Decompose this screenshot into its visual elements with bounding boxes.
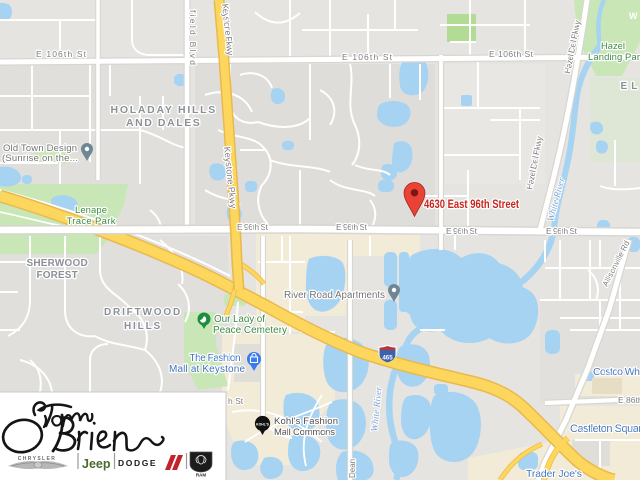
- svg-text:DRIFTWOOD: DRIFTWOOD: [104, 307, 182, 318]
- svg-text:field Blvd: field Blvd: [188, 10, 198, 65]
- svg-text:Costco Wh: Costco Wh: [593, 366, 640, 378]
- svg-text:E 106th St: E 106th St: [36, 49, 87, 59]
- svg-text:4630 East 96th Street: 4630 East 96th Street: [424, 197, 519, 211]
- svg-text:(Sunrise on the...: (Sunrise on the...: [2, 153, 78, 164]
- svg-text:Jeep: Jeep: [82, 457, 111, 471]
- svg-text:Our Lady of: Our Lady of: [214, 314, 265, 325]
- svg-text:E 96th St: E 96th St: [336, 222, 368, 232]
- svg-text:E 96th St: E 96th St: [446, 226, 478, 236]
- svg-text:h St: h St: [228, 396, 244, 406]
- svg-text:Lenape: Lenape: [75, 205, 107, 216]
- svg-text:E 106th St: E 106th St: [489, 49, 534, 59]
- svg-text:E 96th St: E 96th St: [546, 226, 578, 236]
- svg-text:RAM: RAM: [196, 473, 206, 478]
- svg-text:Peace Cemetery: Peace Cemetery: [213, 325, 287, 336]
- svg-text:Dean: Dean: [348, 459, 357, 478]
- svg-text:Mall at Keystone: Mall at Keystone: [169, 364, 245, 375]
- svg-text:E L: E L: [621, 81, 640, 92]
- svg-text:KOHL'S: KOHL'S: [256, 423, 269, 427]
- svg-text:E 86th: E 86th: [618, 395, 640, 405]
- svg-text:HOLADAY HILLS: HOLADAY HILLS: [111, 104, 218, 116]
- svg-text:W: W: [629, 11, 638, 21]
- svg-text:Trace Park: Trace Park: [67, 216, 116, 227]
- svg-text:Mall Commons: Mall Commons: [274, 427, 335, 438]
- svg-text:Castleton Squar: Castleton Squar: [570, 423, 640, 435]
- svg-text:Hazel: Hazel: [601, 41, 625, 52]
- svg-text:AND DALES: AND DALES: [126, 117, 202, 129]
- svg-text:Trader Joe's: Trader Joe's: [526, 468, 582, 480]
- svg-text:The Fashion: The Fashion: [190, 353, 241, 364]
- svg-text:HILLS: HILLS: [124, 321, 162, 332]
- svg-text:E 96th St: E 96th St: [237, 222, 269, 232]
- svg-text:CHRYSLER: CHRYSLER: [18, 456, 57, 462]
- svg-text:E 106th St: E 106th St: [342, 52, 393, 62]
- svg-text:465: 465: [382, 355, 393, 362]
- svg-text:Landing Par: Landing Par: [588, 52, 640, 63]
- svg-text:River Road Apartments: River Road Apartments: [284, 290, 385, 301]
- svg-text:Kohl's Fashion: Kohl's Fashion: [274, 416, 338, 427]
- svg-text:DODGE: DODGE: [118, 458, 157, 468]
- svg-text:FOREST: FOREST: [37, 270, 80, 281]
- svg-text:SHERWOOD: SHERWOOD: [27, 258, 90, 269]
